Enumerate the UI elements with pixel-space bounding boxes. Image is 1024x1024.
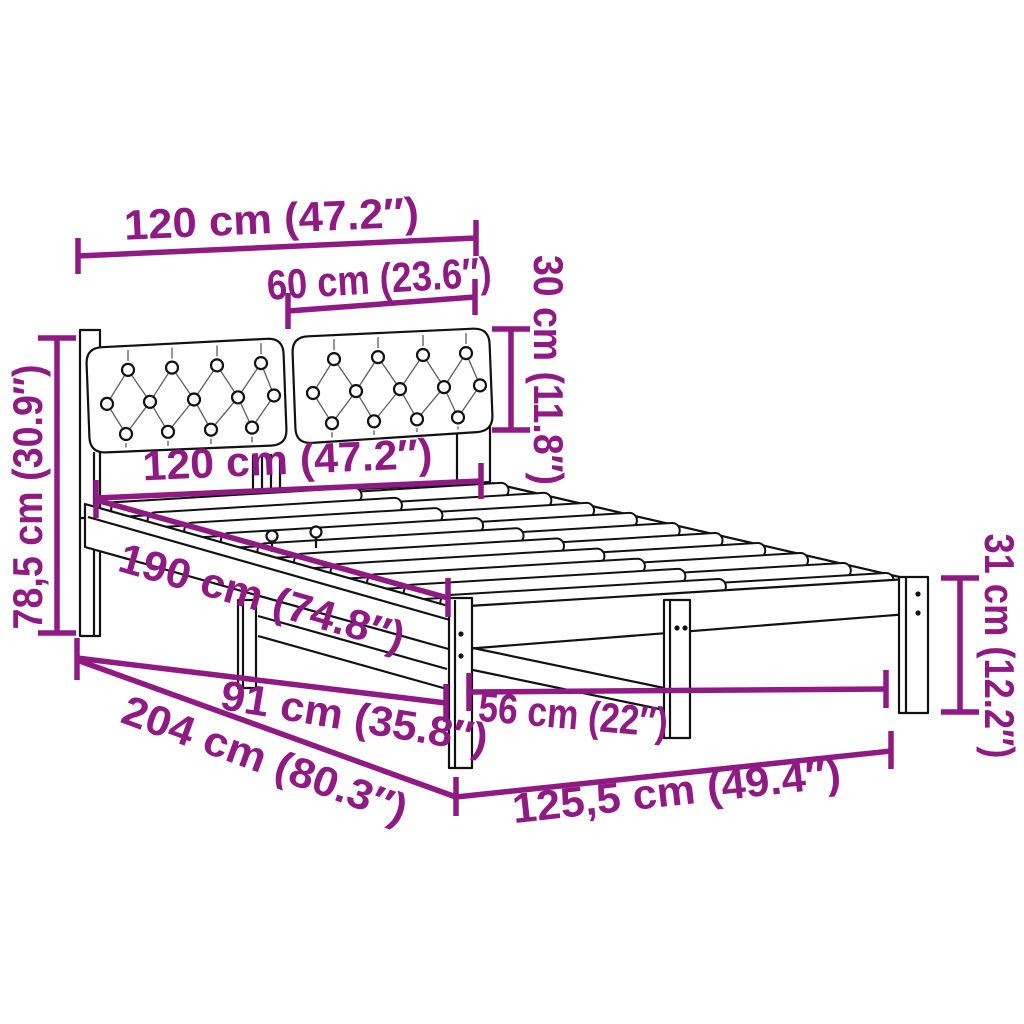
- headboard-cushion: [87, 339, 287, 453]
- tuft-button: [372, 351, 384, 363]
- tuft-button: [474, 379, 486, 391]
- dim-label-headboard-height: 78,5 cm (30.9″): [4, 365, 51, 630]
- peg: [267, 531, 278, 542]
- dim-label-cushion-height: 30 cm (11.8″): [525, 255, 572, 485]
- tuft-button: [144, 396, 156, 408]
- foot-right-leg: [899, 577, 928, 713]
- tuft-button: [162, 426, 174, 438]
- tuft-button: [268, 390, 280, 402]
- tuft-button: [350, 385, 362, 397]
- tuft-button: [452, 411, 464, 423]
- bolt: [674, 625, 679, 630]
- tuft-button: [326, 417, 338, 429]
- bolt: [458, 631, 463, 636]
- peg: [311, 527, 322, 538]
- tuft-button: [188, 394, 200, 406]
- tuft-button: [411, 413, 423, 425]
- tuft-button: [394, 383, 406, 395]
- bolt: [682, 625, 687, 630]
- dim-label-leg-height: 31 cm (12.2″): [976, 534, 1023, 759]
- tuft-button: [328, 353, 340, 365]
- tuft-button: [166, 362, 178, 374]
- tuft-button: [368, 415, 380, 427]
- tuft-button: [120, 428, 132, 440]
- tuft-button: [460, 347, 472, 359]
- bed-dimension-diagram: Bed frame with cushioned headboard — dim…: [0, 0, 1024, 1024]
- tuft-button: [211, 359, 223, 371]
- bolt: [915, 591, 920, 596]
- tuft-button: [232, 391, 244, 403]
- headboard-cushion: [293, 329, 493, 443]
- tuft-button: [307, 387, 319, 399]
- bolt: [458, 653, 463, 658]
- tuft-button: [438, 381, 450, 393]
- bolt: [915, 610, 920, 615]
- tuft-button: [122, 364, 134, 376]
- tuft-button: [205, 424, 217, 436]
- tuft-button: [255, 357, 267, 369]
- tuft-button: [101, 398, 113, 410]
- tuft-button: [417, 349, 429, 361]
- tuft-button: [246, 422, 258, 434]
